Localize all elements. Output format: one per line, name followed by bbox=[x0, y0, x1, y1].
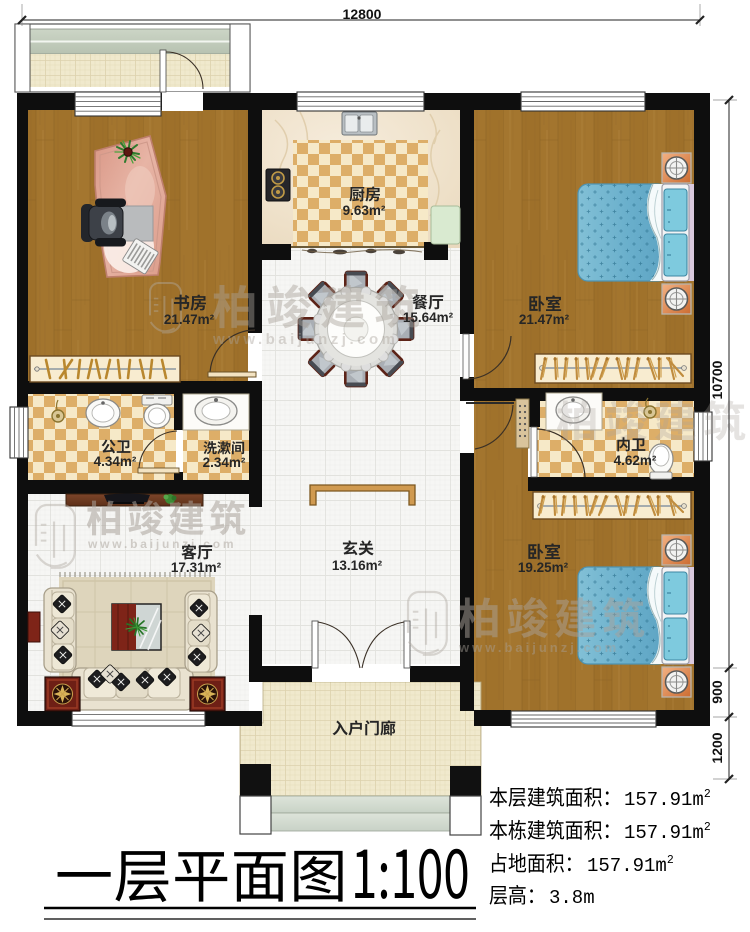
svg-text:4.34m²: 4.34m² bbox=[94, 454, 137, 469]
svg-text:157.91m2: 157.91m2 bbox=[624, 788, 711, 811]
svg-text:www.baijunzj.com: www.baijunzj.com bbox=[87, 537, 236, 551]
svg-text:900: 900 bbox=[709, 680, 725, 704]
svg-text:www.baijunzj.com: www.baijunzj.com bbox=[212, 331, 398, 348]
svg-text:9.63m²: 9.63m² bbox=[343, 203, 386, 218]
svg-text:15.64m²: 15.64m² bbox=[403, 310, 454, 325]
svg-text:4.62m²: 4.62m² bbox=[614, 453, 657, 468]
svg-text:19.25m²: 19.25m² bbox=[518, 560, 569, 575]
svg-text:21.47m²: 21.47m² bbox=[164, 312, 215, 327]
svg-text:12800: 12800 bbox=[343, 6, 382, 22]
svg-text:21.47m²: 21.47m² bbox=[519, 312, 570, 327]
svg-text:157.91m2: 157.91m2 bbox=[624, 821, 711, 844]
svg-text:157.91m2: 157.91m2 bbox=[587, 854, 674, 877]
svg-text:www.baijunzj.com: www.baijunzj.com bbox=[458, 640, 619, 655]
svg-text:17.31m²: 17.31m² bbox=[171, 560, 222, 575]
svg-text:1200: 1200 bbox=[709, 732, 725, 763]
svg-text:2.34m²: 2.34m² bbox=[203, 455, 246, 470]
svg-text:10700: 10700 bbox=[709, 360, 725, 399]
svg-text:3.8m: 3.8m bbox=[549, 887, 595, 909]
svg-text:13.16m²: 13.16m² bbox=[332, 558, 383, 573]
